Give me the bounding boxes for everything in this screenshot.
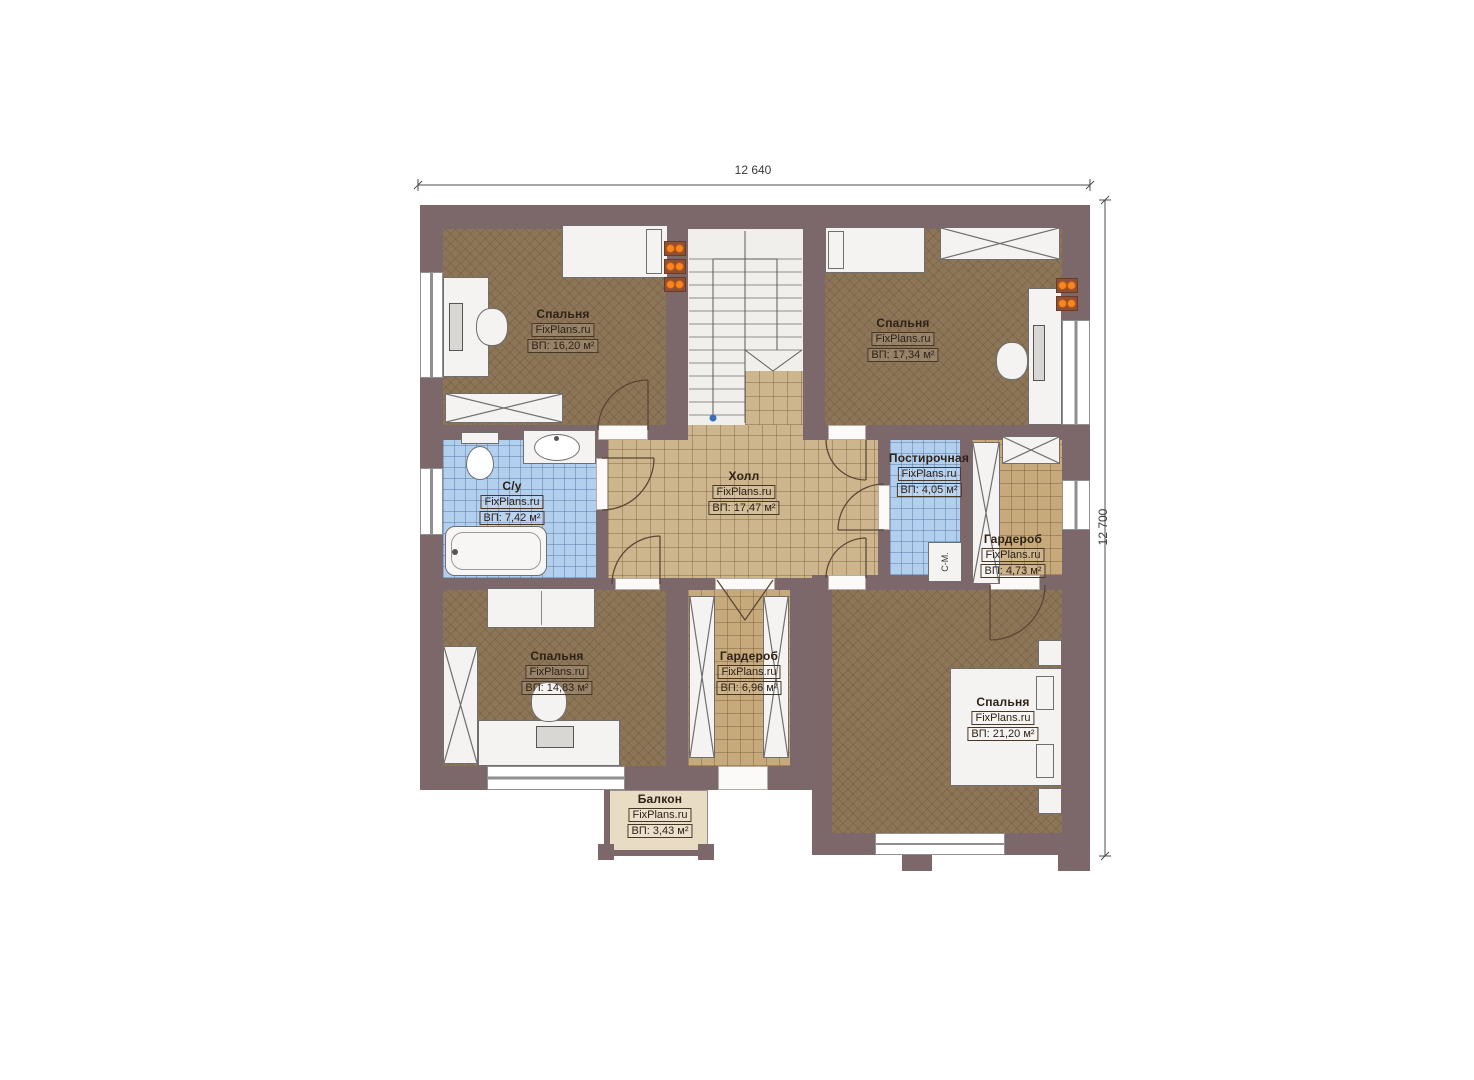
room-brand: FixPlans.ru <box>525 665 588 679</box>
wall-segment <box>866 575 878 590</box>
room-area: ВП: 17,34 м² <box>867 348 938 362</box>
computer-monitor <box>1033 325 1045 381</box>
room-brand: FixPlans.ru <box>897 467 960 481</box>
dimension-height-label: 12 700 <box>1096 497 1110 557</box>
pillow <box>1036 676 1054 710</box>
sink-faucet <box>554 436 559 441</box>
radiator-dot <box>1067 281 1076 290</box>
room-name: Холл <box>708 470 779 483</box>
floor-plan: С-М. Спальня FixPlans.ru ВП: 16,20 м² <box>0 0 1474 1080</box>
door-bathroom <box>602 458 654 510</box>
room-name: Спальня <box>521 650 592 663</box>
room-area: ВП: 17,47 м² <box>708 501 779 515</box>
desk-chair <box>476 308 508 346</box>
wall-corridor-left <box>666 590 688 766</box>
room-label-bedroom-bl: Спальня FixPlans.ru ВП: 14,83 м² <box>521 650 592 695</box>
room-area: ВП: 3,43 м² <box>627 824 692 838</box>
radiator-dot <box>675 280 684 289</box>
radiator <box>664 277 686 292</box>
window-bathroom <box>420 468 443 535</box>
balcony-pier <box>598 844 614 860</box>
wall-corridor-right <box>790 590 812 766</box>
window-bedroom-bl <box>487 766 625 790</box>
window-bedroom-tr <box>1062 320 1090 425</box>
room-brand: FixPlans.ru <box>981 548 1044 562</box>
room-area: ВП: 4,05 м² <box>896 483 961 497</box>
bathtub-faucet <box>452 549 458 555</box>
stair-direction-marker <box>710 415 717 422</box>
room-brand: FixPlans.ru <box>871 332 934 346</box>
door-bedroom-tl <box>598 380 648 430</box>
pillow <box>828 231 844 269</box>
door-laundry <box>838 484 884 530</box>
bathtub <box>445 526 547 576</box>
room-brand: FixPlans.ru <box>531 323 594 337</box>
room-name: Спальня <box>867 317 938 330</box>
wardrobe-cabinet <box>940 227 1060 260</box>
room-name: Гардероб <box>980 533 1045 546</box>
wall-segment <box>775 578 812 590</box>
room-name: Гардероб <box>716 650 781 663</box>
room-label-laundry: Постирочная FixPlans.ru ВП: 4,05 м² <box>889 452 969 497</box>
desk-chair <box>996 342 1028 380</box>
dimension-line-top <box>418 178 1090 192</box>
door-bedroom-tr <box>826 440 866 480</box>
radiator-dot <box>675 262 684 271</box>
wall-segment <box>596 440 608 458</box>
window-wardrobe-right <box>1062 480 1090 530</box>
wardrobe-cabinet <box>445 393 563 423</box>
room-area: ВП: 7,42 м² <box>479 511 544 525</box>
wall-segment <box>768 766 812 790</box>
radiator <box>664 241 686 256</box>
room-brand: FixPlans.ru <box>712 485 775 499</box>
bathtub-basin <box>451 532 541 570</box>
nightstand <box>1038 788 1062 814</box>
room-brand: FixPlans.ru <box>717 665 780 679</box>
facade-pier <box>902 855 932 871</box>
wardrobe-cabinet <box>689 596 715 758</box>
room-label-bedroom-br: Спальня FixPlans.ru ВП: 21,20 м² <box>967 696 1038 741</box>
door-bedroom-br <box>826 538 866 578</box>
wall-bedroom-br-left <box>812 590 832 833</box>
room-name: Спальня <box>967 696 1038 709</box>
wall-segment <box>648 425 688 440</box>
computer-monitor <box>449 303 463 351</box>
balcony-pier <box>698 844 714 860</box>
pillow <box>1036 744 1054 778</box>
wall-segment <box>803 425 828 440</box>
radiator-dot <box>1067 299 1076 308</box>
room-area: ВП: 4,73 м² <box>980 564 1045 578</box>
sofa <box>487 588 595 628</box>
wardrobe-cabinet <box>443 646 478 764</box>
room-label-wardrobe-center: Гардероб FixPlans.ru ВП: 6,96 м² <box>716 650 781 695</box>
door-opening-balcony <box>718 766 768 790</box>
room-brand: FixPlans.ru <box>628 808 691 822</box>
room-label-wardrobe-right: Гардероб FixPlans.ru ВП: 4,73 м² <box>980 533 1045 578</box>
wall-segment <box>878 530 890 575</box>
radiator <box>1056 296 1078 311</box>
room-label-bedroom-tl: Спальня FixPlans.ru ВП: 16,20 м² <box>527 308 598 353</box>
radiator <box>664 259 686 274</box>
radiator-dot <box>1058 281 1067 290</box>
wall-top <box>420 205 1090 229</box>
staircase <box>688 229 803 425</box>
toilet-tank <box>461 432 499 444</box>
wall-stairs-right <box>803 229 825 425</box>
radiator <box>1056 278 1078 293</box>
radiator-dot <box>675 244 684 253</box>
radiator-dot <box>666 280 675 289</box>
wall-segment <box>596 510 608 578</box>
room-area: ВП: 21,20 м² <box>967 727 1038 741</box>
room-label-bathroom: С/у FixPlans.ru ВП: 7,42 м² <box>479 480 544 525</box>
wall-segment <box>690 766 718 790</box>
room-name: Балкон <box>627 793 692 806</box>
facade-pier <box>1058 855 1090 871</box>
wardrobe-cabinet <box>1002 436 1060 464</box>
radiator-dot <box>1058 299 1067 308</box>
wall-segment <box>660 578 715 590</box>
door-opening-bedroom-tr <box>828 425 866 440</box>
room-area: ВП: 6,96 м² <box>716 681 781 695</box>
room-area: ВП: 14,83 м² <box>521 681 592 695</box>
room-brand: FixPlans.ru <box>480 495 543 509</box>
door-wardrobe-right <box>990 585 1045 640</box>
balcony-wall-bottom <box>604 850 712 856</box>
dimension-width-label: 12 640 <box>718 163 788 177</box>
room-brand: FixPlans.ru <box>971 711 1034 725</box>
door-bedroom-bl <box>612 536 660 584</box>
room-name: С/у <box>479 480 544 493</box>
door-wardrobe-center-double <box>715 580 775 622</box>
radiator-dot <box>666 262 675 271</box>
window-bedroom-br <box>875 833 1005 855</box>
washing-machine-label: С-М. <box>928 542 962 582</box>
room-label-bedroom-tr: Спальня FixPlans.ru ВП: 17,34 м² <box>867 317 938 362</box>
room-name: Постирочная <box>889 452 969 465</box>
nightstand <box>1038 640 1062 666</box>
pillow <box>646 229 662 274</box>
toilet <box>466 446 494 480</box>
room-name: Спальня <box>527 308 598 321</box>
room-label-balcony: Балкон FixPlans.ru ВП: 3,43 м² <box>627 793 692 838</box>
room-area: ВП: 16,20 м² <box>527 339 598 353</box>
printer <box>536 726 574 748</box>
window-bedroom-tl <box>420 272 443 378</box>
radiator-dot <box>666 244 675 253</box>
room-label-hall: Холл FixPlans.ru ВП: 17,47 м² <box>708 470 779 515</box>
sofa-cushion-line <box>541 591 542 625</box>
